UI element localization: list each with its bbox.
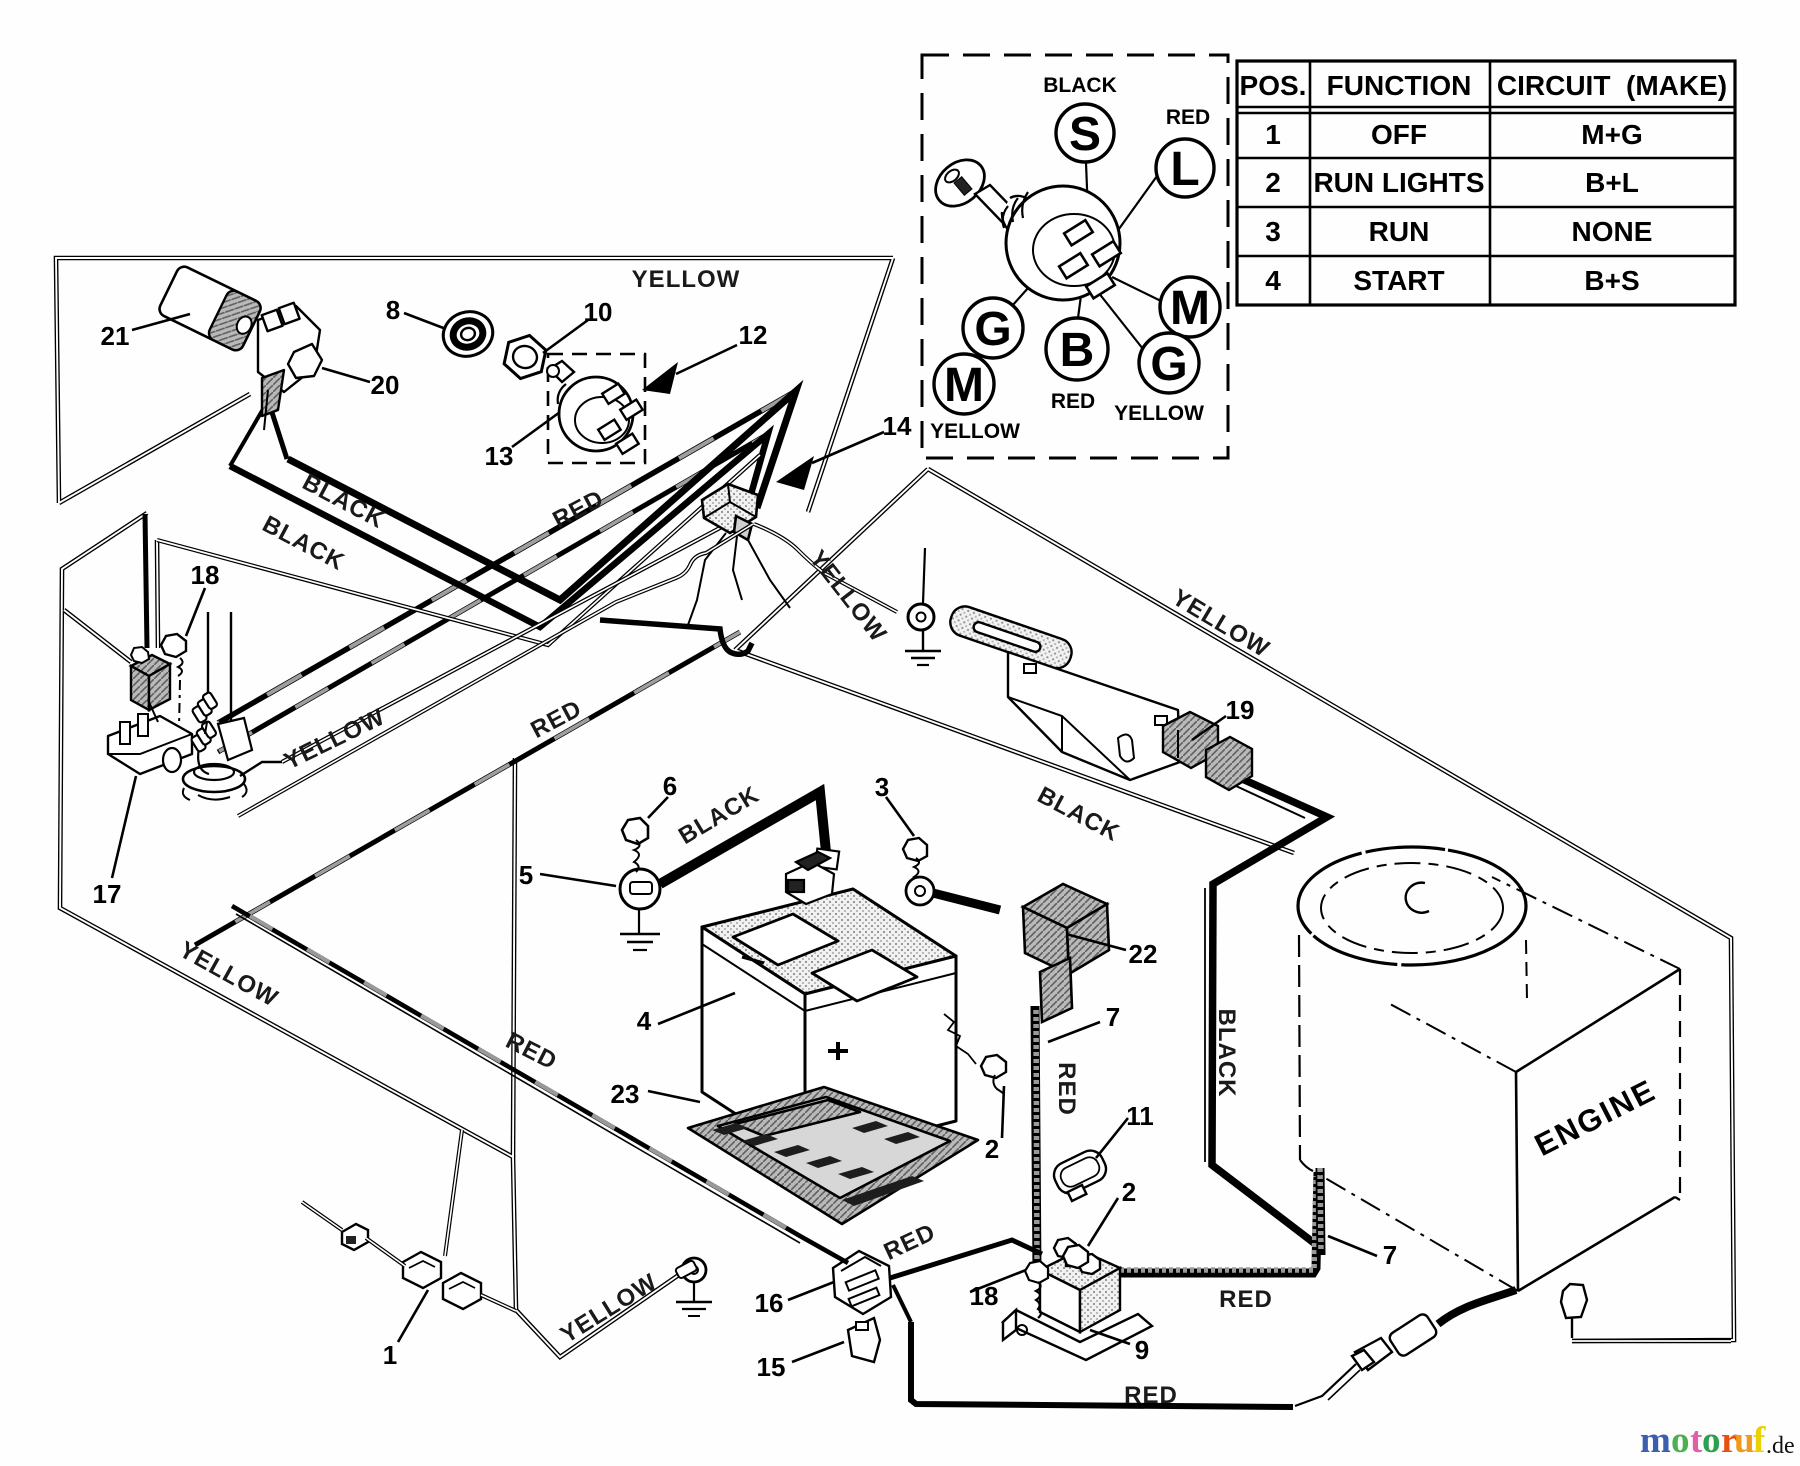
svg-text:2: 2 xyxy=(1122,1177,1136,1207)
svg-text:18: 18 xyxy=(970,1281,999,1311)
svg-text:RED: RED xyxy=(1124,1382,1178,1409)
svg-text:M: M xyxy=(1170,282,1210,335)
svg-text:5: 5 xyxy=(519,860,533,890)
svg-text:L: L xyxy=(1170,143,1199,196)
svg-text:16: 16 xyxy=(755,1288,784,1318)
svg-text:YELLOW: YELLOW xyxy=(1114,402,1204,425)
svg-text:4: 4 xyxy=(637,1006,652,1036)
svg-text:BLACK: BLACK xyxy=(1043,74,1117,97)
svg-text:7: 7 xyxy=(1383,1240,1397,1270)
svg-text:START: START xyxy=(1353,265,1444,296)
svg-text:20: 20 xyxy=(371,370,400,400)
svg-text:POS.: POS. xyxy=(1240,70,1307,101)
svg-text:YELLOW: YELLOW xyxy=(632,266,741,293)
svg-text:G: G xyxy=(974,303,1011,356)
svg-text:21: 21 xyxy=(101,321,130,351)
svg-text:m: m xyxy=(1640,1420,1671,1461)
svg-text:11: 11 xyxy=(1126,1101,1154,1131)
svg-text:19: 19 xyxy=(1226,695,1255,725)
svg-text:3: 3 xyxy=(1265,216,1281,247)
svg-text:12: 12 xyxy=(739,320,768,350)
svg-text:RED: RED xyxy=(1219,1286,1273,1313)
svg-text:RUN: RUN xyxy=(1369,216,1430,247)
svg-text:RED: RED xyxy=(1166,106,1210,129)
svg-text:1: 1 xyxy=(1265,119,1281,150)
svg-text:BLACK: BLACK xyxy=(1213,1009,1240,1098)
svg-text:RUN LIGHTS: RUN LIGHTS xyxy=(1313,167,1484,198)
svg-text:B: B xyxy=(1060,324,1095,377)
svg-text:OFF: OFF xyxy=(1371,119,1427,150)
svg-text:B+L: B+L xyxy=(1585,167,1639,198)
svg-text:FUNCTION: FUNCTION xyxy=(1327,70,1472,101)
svg-text:15: 15 xyxy=(757,1352,786,1382)
svg-text:M: M xyxy=(944,359,984,412)
svg-text:18: 18 xyxy=(191,560,220,590)
svg-text:13: 13 xyxy=(485,441,514,471)
svg-text:RED: RED xyxy=(1053,1062,1080,1116)
svg-text:f: f xyxy=(1753,1420,1766,1461)
svg-text:10: 10 xyxy=(584,297,613,327)
svg-text:2: 2 xyxy=(1265,167,1281,198)
svg-text:8: 8 xyxy=(386,295,400,325)
svg-text:1: 1 xyxy=(383,1340,397,1370)
svg-text:CIRCUIT (MAKE): CIRCUIT (MAKE) xyxy=(1497,70,1727,101)
svg-text:2: 2 xyxy=(985,1134,999,1164)
svg-text:NONE: NONE xyxy=(1572,216,1653,247)
svg-text:.de: .de xyxy=(1766,1433,1795,1459)
svg-text:17: 17 xyxy=(93,879,122,909)
svg-text:RED: RED xyxy=(1051,390,1095,413)
svg-text:YELLOW: YELLOW xyxy=(930,420,1020,443)
svg-text:S: S xyxy=(1069,108,1101,161)
svg-text:22: 22 xyxy=(1129,939,1158,969)
svg-text:6: 6 xyxy=(663,771,677,801)
svg-text:M+G: M+G xyxy=(1581,119,1642,150)
svg-text:7: 7 xyxy=(1106,1002,1120,1032)
svg-text:4: 4 xyxy=(1265,265,1281,296)
svg-text:o: o xyxy=(1671,1420,1690,1461)
svg-text:o: o xyxy=(1702,1420,1721,1461)
svg-text:23: 23 xyxy=(611,1079,640,1109)
svg-text:14: 14 xyxy=(883,411,912,441)
svg-text:3: 3 xyxy=(875,772,889,802)
svg-text:9: 9 xyxy=(1135,1335,1149,1365)
svg-text:u: u xyxy=(1734,1420,1755,1461)
svg-text:G: G xyxy=(1150,338,1187,391)
svg-text:B+S: B+S xyxy=(1584,265,1639,296)
